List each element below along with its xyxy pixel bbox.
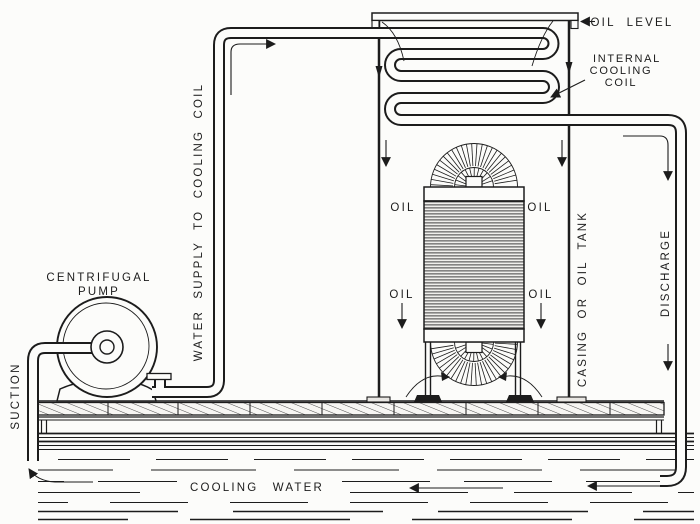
fan-radial-line: [472, 144, 473, 166]
transformer-left-foot: [414, 395, 442, 402]
oil-label-lower-right: OIL: [528, 289, 553, 301]
suction-label: SUCTION: [10, 362, 22, 429]
transformer-core: [424, 201, 524, 329]
bottom-fan-hub: [466, 342, 482, 353]
top-fan-hub: [466, 177, 482, 188]
oil-label-upper-left: OIL: [390, 202, 415, 214]
fan-radial-line: [471, 363, 473, 386]
fan-radial-line: [431, 345, 453, 349]
platform-legs: [42, 420, 662, 433]
oil-drape-arc: [502, 376, 542, 397]
tank-lid-right-lip: [571, 21, 578, 29]
centrifugal-pump-label-line1: CENTRIFUGAL: [46, 272, 151, 284]
wall-flow-arrowhead-right: [566, 62, 573, 74]
transformer-right-foot: [506, 395, 534, 402]
internal-coil-label-line1: INTERNAL: [593, 53, 661, 65]
oil-level-label: OIL LEVEL: [591, 17, 674, 29]
diagram-canvas: OIL LEVEL INTERNAL COOLING COIL WATER SU…: [0, 0, 700, 524]
discharge-flow-arrow-top: [623, 136, 668, 180]
transformer-bottom-plate: [424, 329, 524, 342]
fan-radial-line: [476, 144, 478, 167]
casing-label: CASING OR OIL TANK: [577, 211, 589, 387]
platform-masonry-strip: [38, 403, 664, 416]
oil-label-upper-right: OIL: [527, 202, 552, 214]
oil-label-lower-left: OIL: [389, 289, 414, 301]
fan-radial-line: [495, 180, 517, 184]
labels: OIL LEVEL INTERNAL COOLING COIL WATER SU…: [10, 17, 673, 494]
tank-left-foot: [367, 397, 390, 402]
fan-radial-line: [482, 343, 494, 344]
pump-shaft: [100, 340, 114, 354]
fan-radial-line: [495, 343, 517, 344]
pump-outlet-flange: [147, 374, 171, 380]
water-supply-label: WATER SUPPLY TO COOLING COIL: [193, 83, 205, 361]
cooling-water-label: COOLING WATER: [190, 482, 324, 494]
centrifugal-pump-label-line2: PUMP: [78, 286, 120, 298]
supply-flow-arrow: [231, 44, 275, 95]
suction-intake-arrow: [29, 469, 93, 482]
fan-flow-arrowhead: [498, 372, 507, 381]
tank-right-foot: [557, 397, 586, 402]
fan-radial-line: [494, 175, 516, 181]
fan-radial-line: [431, 185, 453, 186]
discharge-label: DISCHARGE: [660, 229, 672, 317]
transformer-cooling-diagram: OIL LEVEL INTERNAL COOLING COIL WATER SU…: [0, 0, 700, 524]
transformer-top-plate: [424, 187, 524, 201]
fan-radial-line: [455, 185, 467, 186]
foundation-platform: [36, 401, 664, 433]
fan-radial-line: [475, 363, 476, 385]
tank-lid: [372, 13, 578, 21]
internal-coil-label-line3: COIL: [605, 77, 637, 89]
fan-radial-line: [432, 348, 454, 354]
transformer: [406, 144, 542, 403]
flow-arrows: [29, 21, 668, 488]
wall-flow-arrowhead-left: [376, 66, 383, 78]
cooling-water-pool: [38, 434, 694, 520]
internal-coil-label-line2: COOLING: [590, 65, 653, 77]
